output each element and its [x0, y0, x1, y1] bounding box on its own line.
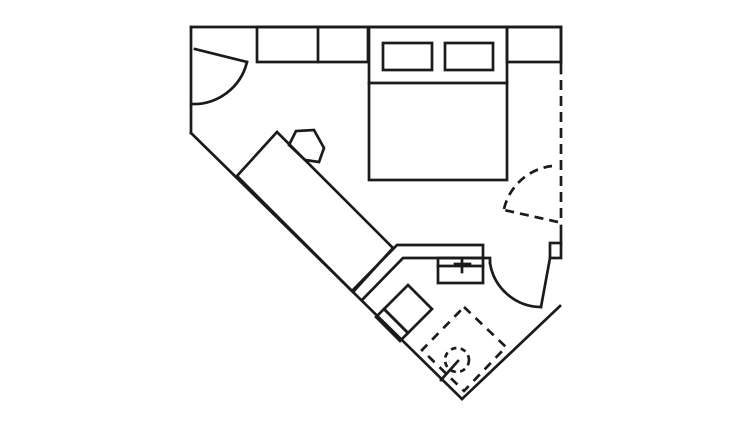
closet-right: [507, 27, 561, 62]
toilet-tank: [376, 309, 408, 341]
shower-drain-circle: [445, 348, 469, 372]
bed: [369, 27, 507, 180]
floorplan-svg: [0, 0, 754, 435]
sink: [438, 258, 483, 283]
bathroom-door-swing-arc: [490, 263, 541, 307]
desk-chair: [289, 130, 324, 162]
entry-door-leaf: [195, 49, 247, 62]
floorplan-page: [0, 0, 754, 435]
toilet-bowl: [384, 285, 432, 333]
dashed-door-swing-arc: [504, 166, 552, 209]
closet-left: [257, 27, 368, 62]
door-jamb-block: [550, 243, 561, 258]
entry-door-swing-arc: [191, 62, 247, 104]
pillow-left: [383, 43, 432, 70]
dashed-door-leaf: [504, 210, 558, 222]
bathroom-door-leaf: [541, 258, 550, 307]
pillow-right: [445, 43, 493, 70]
